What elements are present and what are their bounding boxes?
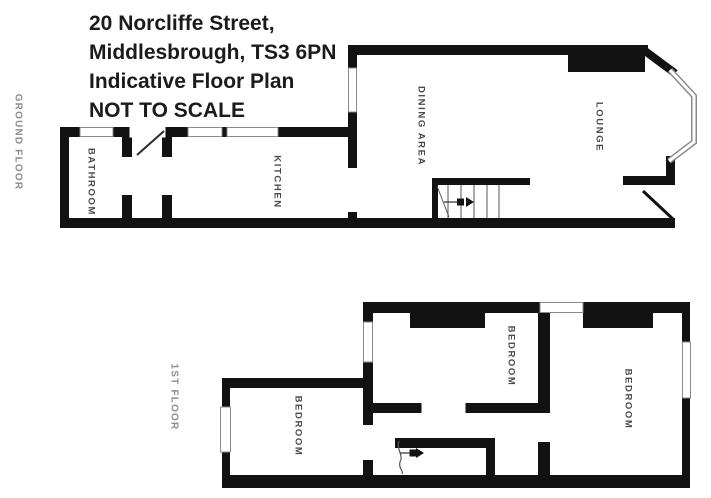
room-label-bedroom-left: BEDROOM (293, 396, 304, 457)
bathroom-window (80, 128, 113, 137)
first-floor-label: 1ST FLOOR (169, 364, 180, 431)
ground-floor-label: GROUND FLOOR (13, 94, 24, 191)
lounge-bay-window (645, 51, 694, 161)
stair-up-arrow (466, 197, 474, 207)
room-label-bedroom-middle: BEDROOM (506, 326, 517, 387)
middle-bedroom-window (364, 322, 373, 362)
rear-opening (540, 303, 583, 313)
room-label-lounge: LOUNGE (594, 102, 605, 152)
dining-side-window (349, 68, 357, 112)
stair-up-arrow (416, 448, 424, 458)
room-label-bathroom: BATHROOM (86, 148, 97, 216)
ground-floor-staircase (437, 185, 499, 218)
left-bedroom-window (221, 407, 231, 452)
front-door-swing (643, 191, 674, 220)
right-bedroom-chimney-breast (583, 313, 653, 328)
floor-plan-page: 20 Norcliffe Street, Middlesbrough, TS3 … (0, 0, 711, 498)
right-bedroom-window (683, 342, 691, 398)
lounge-chimney-breast (568, 55, 645, 72)
middle-bedroom-chimney-breast (410, 313, 485, 328)
ground-floor-windows (80, 68, 357, 137)
kitchen-window-2 (227, 128, 278, 137)
room-label-kitchen: KITCHEN (272, 155, 283, 208)
floor-plan-drawing (0, 0, 711, 498)
room-label-bedroom-right: BEDROOM (623, 369, 634, 430)
kitchen-window-1 (188, 128, 222, 137)
room-label-dining-area: DINING AREA (416, 86, 427, 166)
